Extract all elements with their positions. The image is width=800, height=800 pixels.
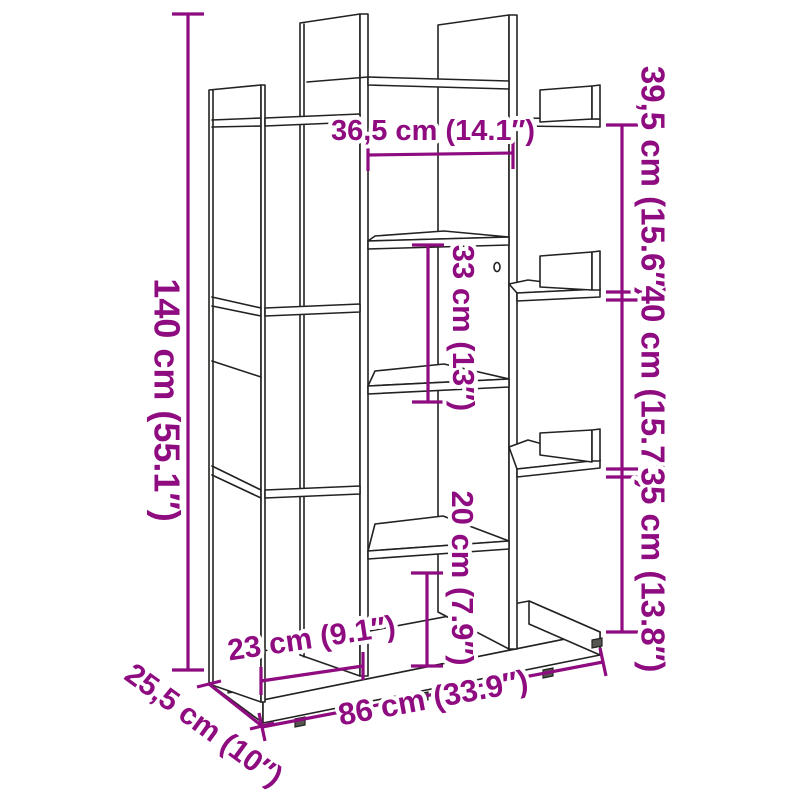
dimension-height-total: 140 cm (55.1″) xyxy=(146,14,204,670)
dimension-label-width-inner-top: 36,5 cm (14.1″) xyxy=(331,115,535,147)
furniture-dimension-diagram: 140 cm (55.1″) 36,5 cm (14.1″) 39,5 cm (… xyxy=(0,0,800,800)
dimension-right-chain: 39,5 cm (15.6″) 40 cm (15.7″) 35 cm (13.… xyxy=(606,66,671,673)
dimension-label-height-total: 140 cm (55.1″) xyxy=(146,278,187,521)
dimension-label-inner-lower: 20 cm (7.9″) xyxy=(445,490,480,665)
dimension-label-right-lower: 35 cm (13.8″) xyxy=(634,468,671,673)
foot xyxy=(592,638,602,648)
left-outer-panel xyxy=(209,85,265,702)
dimension-label-inner-upper: 33 cm (13″) xyxy=(446,245,481,412)
bookcase-line-drawing: 140 cm (55.1″) 36,5 cm (14.1″) 39,5 cm (… xyxy=(0,0,800,800)
dimension-label-right-upper: 39,5 cm (15.6″) xyxy=(634,66,671,298)
dimension-label-right-middle: 40 cm (15.7″) xyxy=(634,286,671,491)
